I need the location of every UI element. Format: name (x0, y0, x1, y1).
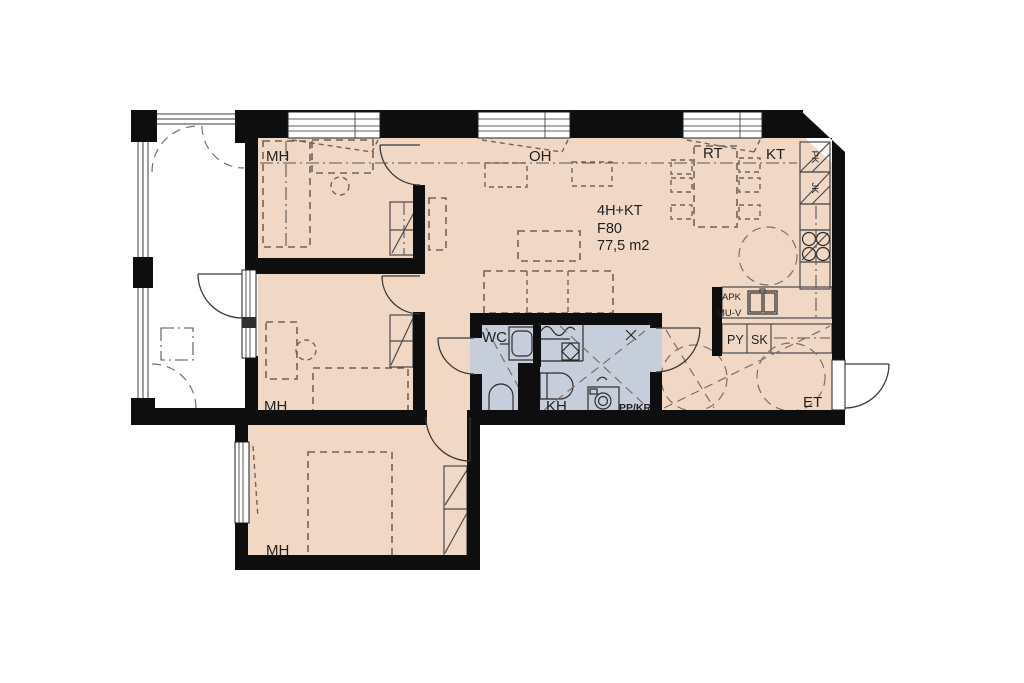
label-freezer: PK (809, 151, 820, 164)
balcony-post-top (131, 110, 157, 142)
floor-plan-drawing: MH OH RT KT MH MH WC KH ET PP/KR APK MU-… (0, 0, 1024, 683)
floor-plan-page: MH OH RT KT MH MH WC KH ET PP/KR APK MU-… (0, 0, 1024, 683)
wall-bottom-main (467, 410, 845, 425)
wall-right-upper (832, 160, 845, 360)
wall-wc-left-b (470, 374, 482, 412)
wall-balcony-top-junction (235, 110, 258, 143)
wall-kitchen-stub (712, 287, 722, 356)
balcony-post-bottom (131, 398, 155, 425)
label-reservation: MU-V (717, 308, 742, 319)
wall-kh-right-a (650, 313, 662, 328)
floor-bedroom-bottom (248, 412, 467, 557)
wall-extension-left-a (235, 425, 248, 442)
label-living: OH (529, 148, 552, 165)
label-bathroom: KH (546, 398, 567, 415)
wall-kh-right-b (650, 372, 662, 412)
wall-balcony-upper (245, 138, 258, 270)
wall-wet-top (470, 313, 662, 325)
label-fridge: JK (809, 182, 820, 194)
wall-wc-kh-divider (533, 325, 541, 367)
wall-bedroom-divider (252, 258, 425, 274)
door-entrance (832, 360, 889, 410)
label-entry: ET (803, 394, 822, 411)
unit-area: 77,5 m2 (597, 238, 649, 254)
label-dishwasher: APK (722, 292, 742, 303)
balcony-post-mid (133, 257, 153, 288)
wall-bedrooms-vertical-a (413, 185, 425, 258)
label-kitchen: KT (766, 146, 785, 163)
wall-bedrooms-vertical-b (413, 312, 425, 412)
label-dining: RT (703, 145, 723, 162)
wall-wc-kh-block (518, 363, 540, 412)
label-wc: WC (482, 329, 507, 346)
label-bedroom-bottom: MH (266, 542, 289, 559)
unit-code: F80 (597, 221, 622, 237)
label-cleaning-closet: SK (751, 333, 768, 347)
label-washer-dryer: PP/KR (619, 402, 652, 414)
wall-wc-left-a (470, 325, 482, 338)
label-bedroom-top: MH (266, 148, 289, 165)
floor-balcony (137, 112, 245, 410)
label-laundry-closet: PY (727, 333, 744, 347)
label-bedroom-middle: MH (264, 398, 287, 415)
wall-extension-right (467, 412, 480, 555)
unit-type: 4H+KT (597, 203, 643, 219)
